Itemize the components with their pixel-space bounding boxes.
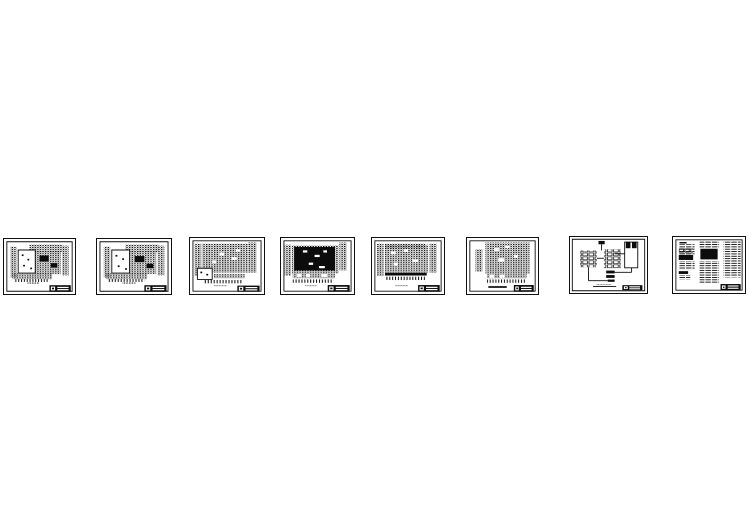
sheet-drawing (372, 238, 444, 294)
floor-plan-4-thumbnail[interactable] (280, 237, 355, 295)
sheet-drawing (97, 239, 171, 294)
sheet-drawing (673, 237, 745, 293)
sheet-drawing (4, 239, 75, 294)
sheet-drawing (190, 238, 264, 294)
floor-plan-1-thumbnail[interactable] (3, 238, 76, 295)
notes-sheet-thumbnail[interactable] (672, 236, 746, 294)
floor-plan-6-thumbnail[interactable] (466, 237, 539, 295)
floor-plan-3-thumbnail[interactable] (189, 237, 265, 295)
floor-plan-2-thumbnail[interactable] (96, 238, 172, 295)
sheet-strip (0, 0, 749, 530)
system-diagram-thumbnail[interactable] (569, 236, 648, 294)
sheet-drawing (467, 238, 538, 294)
floor-plan-5-thumbnail[interactable] (371, 237, 445, 295)
sheet-drawing (570, 237, 647, 293)
sheet-drawing (281, 238, 354, 294)
